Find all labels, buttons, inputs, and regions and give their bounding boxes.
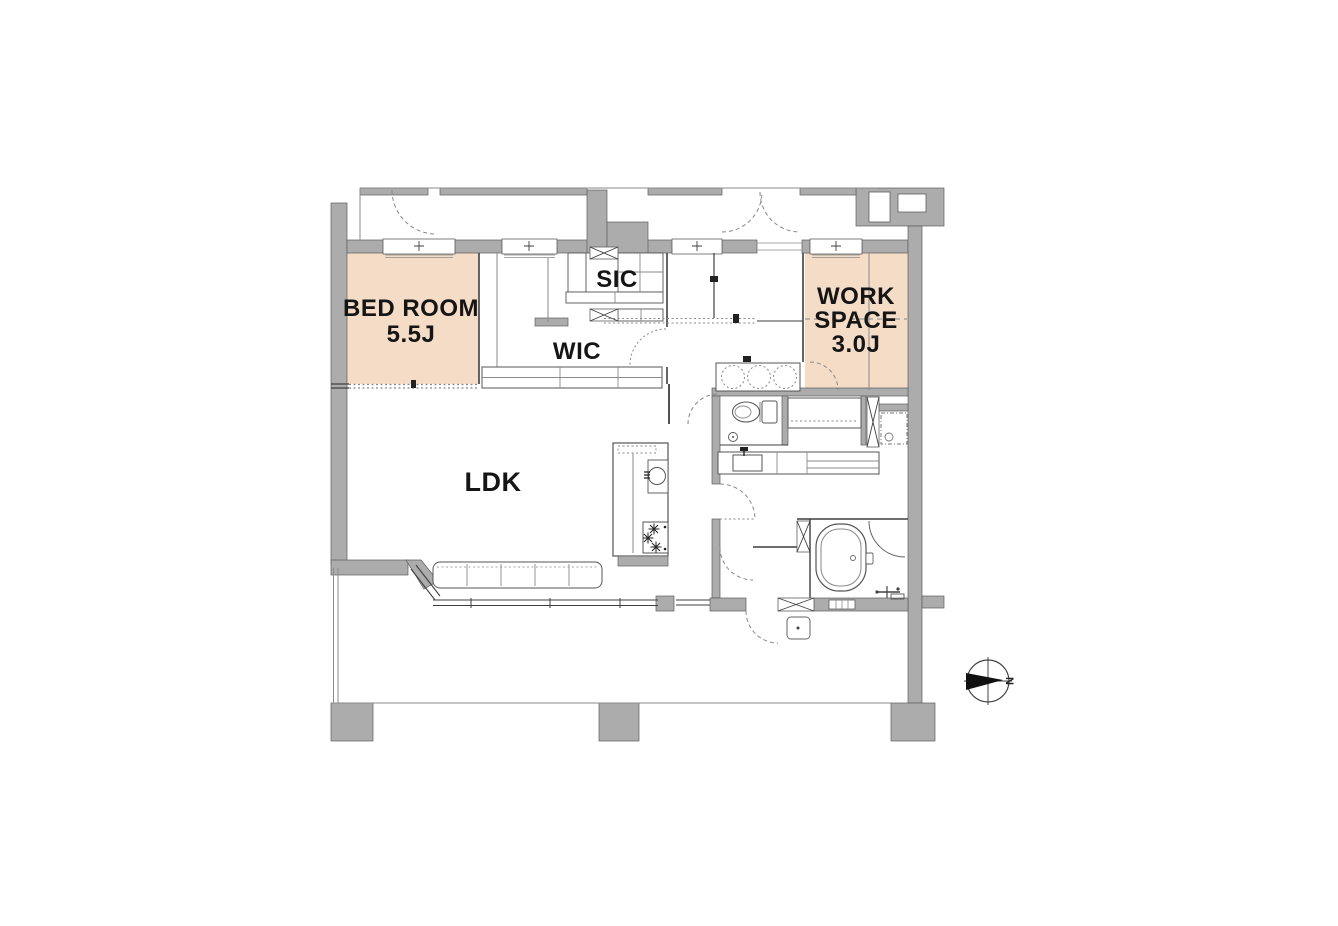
bedroom-label: BED ROOM [343, 295, 479, 322]
kitchen-base [618, 556, 668, 566]
toilet-tank [762, 401, 777, 423]
workspace-label-1: WORK [817, 283, 895, 310]
washing-machine-pan [881, 413, 907, 444]
toilet-room [720, 401, 788, 445]
powder-door-arc [720, 484, 755, 519]
north-label: N [1003, 677, 1015, 685]
kitchen [613, 443, 668, 566]
bath-window [829, 600, 855, 609]
entrance-door-arc-left [722, 192, 762, 232]
compass: N [964, 657, 1015, 705]
workspace-size-label: 3.0J [832, 331, 881, 358]
workspace-label-2: SPACE [814, 307, 897, 334]
ldk-label: LDK [465, 467, 522, 497]
kitchen-sink [644, 460, 668, 493]
wall-notch [898, 194, 926, 212]
changing-door-arc [720, 547, 753, 580]
kitchen-stove [643, 522, 669, 553]
toilet-bowl [733, 402, 760, 422]
bathtub [816, 524, 866, 591]
hall-counter [716, 356, 800, 391]
workspace-window [810, 239, 862, 254]
vanity-counter [718, 447, 879, 474]
bedroom-size-label: 5.5J [387, 321, 436, 348]
door-stop [411, 380, 416, 388]
pillar-middle [599, 703, 639, 741]
sanitary [718, 397, 908, 599]
hatch-vent [778, 598, 814, 611]
floorplan-drawing: BED ROOM 5.5J SIC [0, 0, 1338, 926]
floorplan-page: BED ROOM 5.5J SIC [0, 0, 1338, 926]
balcony-rail-left [334, 568, 339, 703]
door-handle [710, 276, 718, 282]
hatch-box-sic-mid [590, 309, 618, 321]
entrance-threshold [757, 243, 802, 250]
wic-door-arc [630, 329, 666, 365]
wic-sic: SIC WIC [482, 247, 667, 388]
pillar-right [891, 703, 935, 741]
outdoor-unit [787, 617, 810, 639]
wic-window [502, 239, 557, 254]
hatch-box-sic-top [590, 247, 618, 259]
hatch-box-changing [797, 521, 810, 552]
faucet [740, 447, 748, 451]
bathroom [797, 519, 908, 599]
step-stop [733, 314, 739, 323]
wic-label: WIC [553, 338, 601, 365]
aisle-window [676, 600, 710, 605]
bath-door-arc [869, 521, 905, 557]
balcony [331, 565, 891, 703]
sic-label: SIC [596, 266, 638, 293]
corridor-door-arc [392, 190, 436, 234]
pillar-left [331, 703, 373, 741]
ldk: LDK [331, 384, 602, 588]
wash-basin [733, 455, 762, 471]
wic-shelves [482, 367, 662, 388]
shower-fixture [875, 586, 904, 599]
balcony-door-arc [746, 611, 778, 643]
storage-counter [788, 398, 861, 428]
ldk-window [433, 600, 658, 606]
hatch-box-tall [867, 397, 879, 447]
hall-window [672, 239, 722, 254]
entrance-door-arc-right [760, 192, 800, 232]
bedroom-window [383, 239, 455, 254]
bench-sofa [433, 562, 602, 588]
top-right-window [869, 192, 890, 222]
pillars [331, 703, 935, 741]
changing-room [720, 521, 810, 580]
